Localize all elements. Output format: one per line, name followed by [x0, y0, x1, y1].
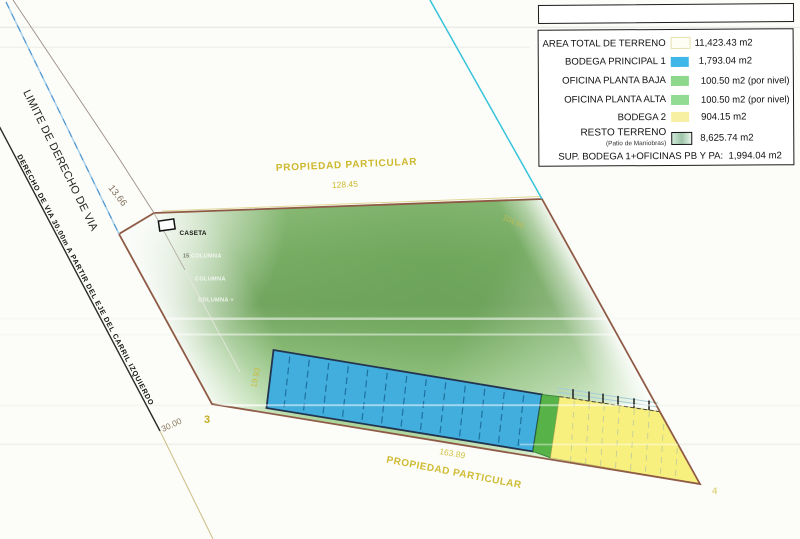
- svg-text:13.66: 13.66: [106, 183, 129, 209]
- svg-text:163.89: 163.89: [439, 446, 467, 460]
- svg-text:128.45: 128.45: [332, 179, 359, 190]
- svg-text:LIMITE DE DERECHO DE VIA: LIMITE DE DERECHO DE VIA: [20, 88, 100, 233]
- svg-text:4: 4: [712, 486, 718, 497]
- svg-text:CASETA: CASETA: [180, 230, 207, 237]
- svg-text:COLUMNA: COLUMNA: [191, 254, 222, 260]
- svg-text:15: 15: [183, 254, 189, 260]
- svg-text:PROPIEDAD PARTICULAR: PROPIEDAD PARTICULAR: [276, 157, 418, 174]
- svg-text:PROPIEDAD PARTICULAR: PROPIEDAD PARTICULAR: [385, 455, 522, 492]
- svg-text:3: 3: [204, 414, 210, 426]
- svg-text:COLUMNA: COLUMNA: [195, 277, 226, 283]
- svg-text:COLUMNA +: COLUMNA +: [198, 298, 234, 304]
- svg-text:30.00: 30.00: [160, 416, 184, 434]
- svg-text:DERECHO DE VIA 30.00m A PARTIR: DERECHO DE VIA 30.00m A PARTIR DEL EJE D…: [15, 153, 156, 407]
